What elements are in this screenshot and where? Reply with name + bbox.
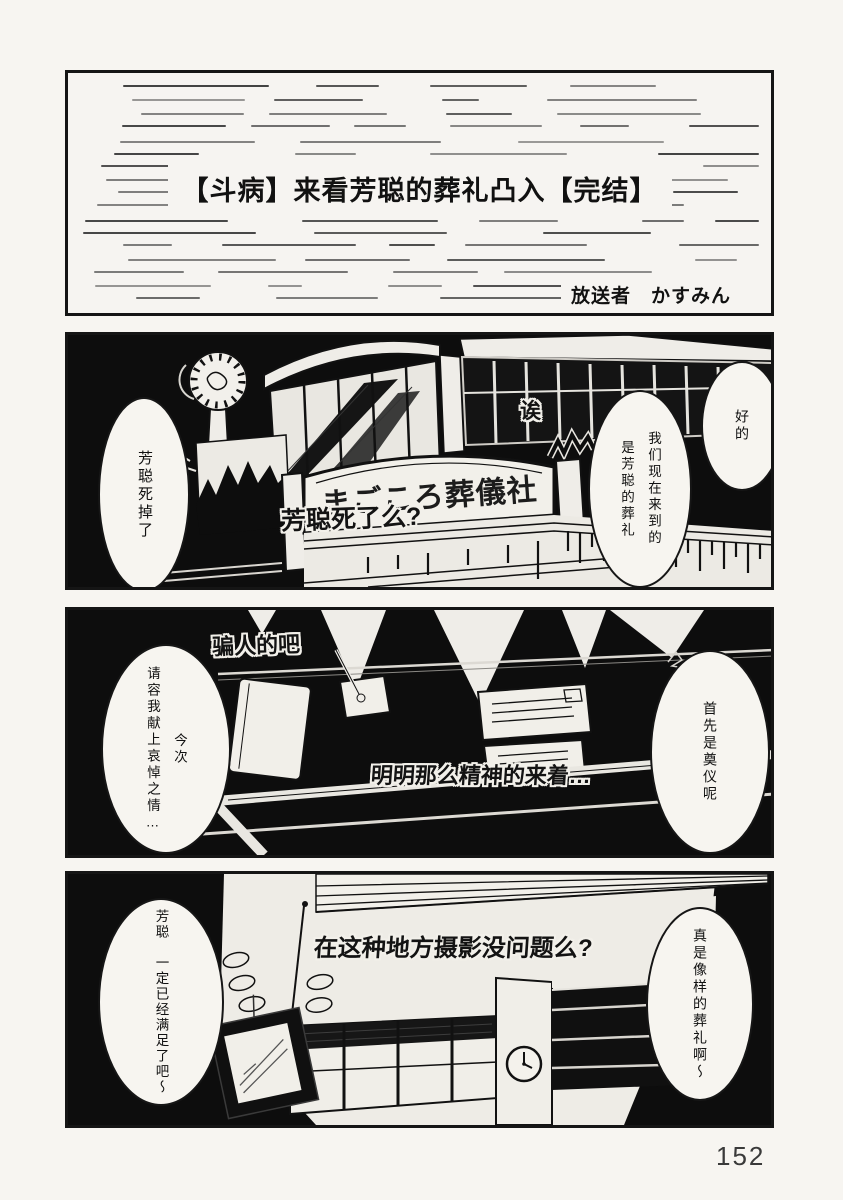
sfx-eh: 诶 [520, 395, 541, 425]
sfx-is-filming-okay: 在这种地方摄影没问题么? [313, 928, 594, 963]
speech-bubble-satisfied: 芳聪 一定已经满足了吧～ [98, 898, 224, 1106]
broadcast-title: 【斗病】来看芳聪的葬礼凸入【完结】 [168, 165, 672, 212]
sfx-he-was-so-energetic: 明明那么精神的来着… [370, 758, 592, 790]
speech-bubble-announce-arrival: 我们现在来到的 是芳聪的葬礼 [588, 390, 692, 588]
speech-bubble-okay: 好的 [701, 361, 774, 491]
speech-bubble-yoshisato-died: 芳聪死掉了 [98, 397, 190, 590]
panel-reception-table: 今次 请容我献上哀悼之情… 首先是奠仪呢 骗人的吧 明明那么精神的来着… [65, 607, 774, 858]
page-number: 152 [716, 1141, 765, 1172]
manga-page: 【斗病】来看芳聪的葬礼凸入【完结】 放送者 かすみん [0, 0, 843, 1200]
sfx-did-yoshisato-die: 芳聪死了么? [280, 497, 421, 538]
speech-bubble-condolences: 今次 请容我献上哀悼之情… [101, 644, 231, 854]
panel-funeral-home-exterior: まごころ葬儀社 芳聪死掉了 我们现在来到的 是芳聪的葬礼 好的 诶 芳聪死了么? [65, 332, 774, 590]
broadcaster-byline: 放送者 かすみん [561, 279, 741, 310]
speech-bubble-condolence-money: 首先是奠仪呢 [650, 650, 770, 854]
window-row [290, 1016, 498, 1114]
pillar-and-clock [496, 978, 552, 1125]
panel-title-banner: 【斗病】来看芳聪的葬礼凸入【完结】 放送者 かすみん [65, 70, 774, 316]
guest-book [228, 678, 311, 780]
speech-bubble-proper-funeral: 真是像样的葬礼啊～ [646, 907, 754, 1101]
sfx-no-way: 骗人的吧 [211, 626, 300, 661]
panel-hall-interior: 芳聪 一定已经满足了吧～ 真是像样的葬礼啊～ 在这种地方摄影没问题么? [65, 871, 774, 1128]
